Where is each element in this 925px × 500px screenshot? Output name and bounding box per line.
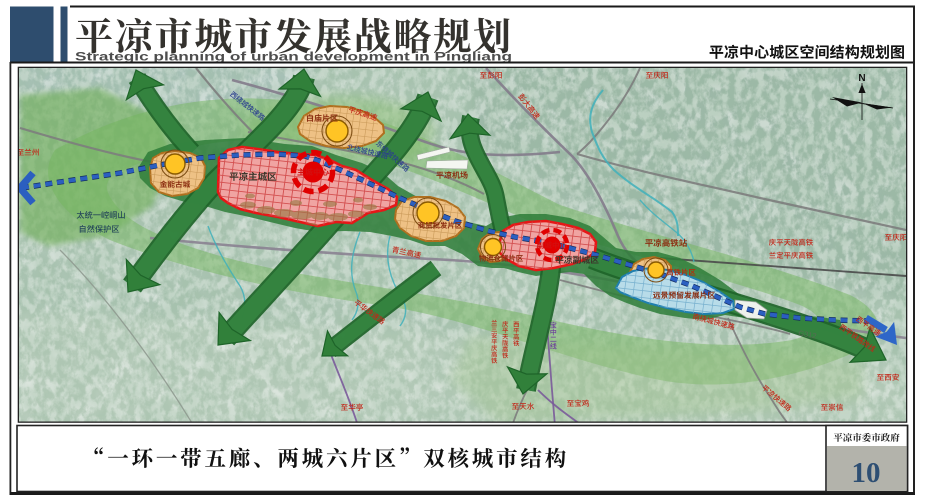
svg-text:N: N xyxy=(858,73,865,84)
svg-text:10: 10 xyxy=(852,457,881,489)
